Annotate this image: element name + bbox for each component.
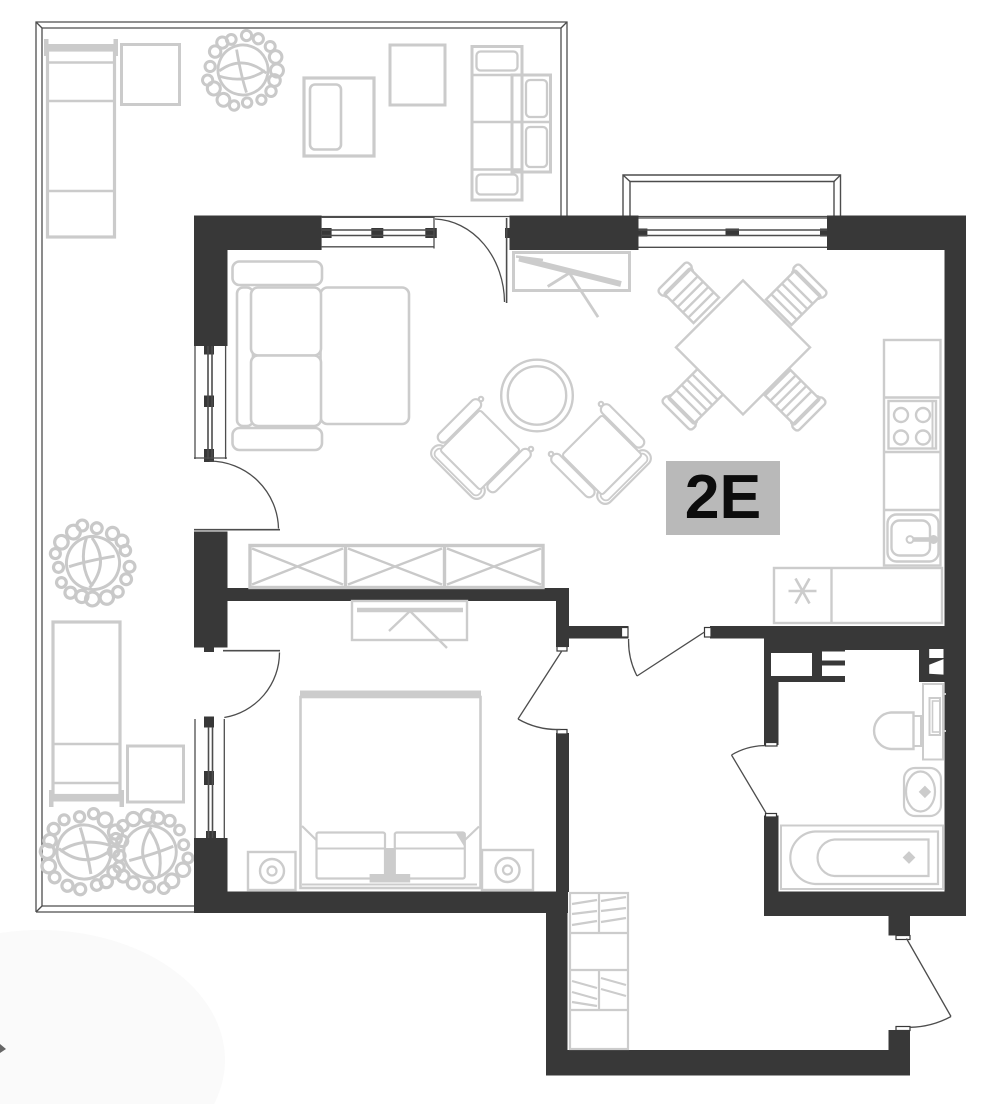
svg-text:2E: 2E xyxy=(685,462,761,532)
